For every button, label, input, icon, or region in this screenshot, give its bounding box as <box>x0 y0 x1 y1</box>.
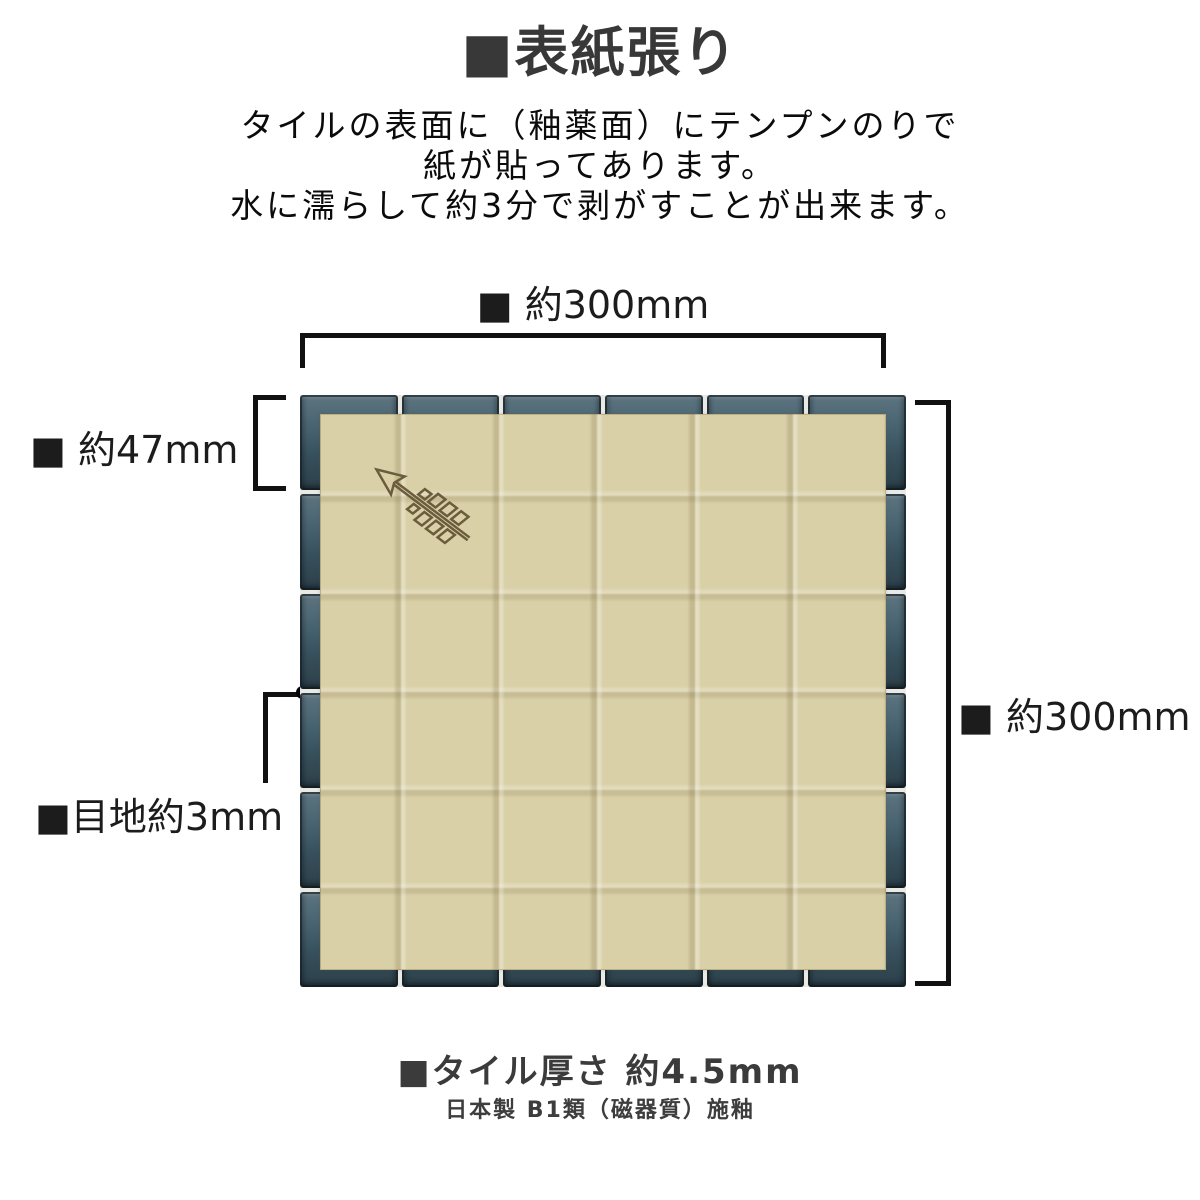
height-dimension-bracket <box>915 400 951 986</box>
dimension-label-joint: ■目地約3mm <box>35 786 283 841</box>
dimension-label-height: ■ 約300mm <box>958 686 1191 741</box>
page-title: ■表紙張り <box>0 8 1200 87</box>
paper-facing <box>320 414 886 970</box>
description-line: 紙が貼ってあります。 <box>0 146 1200 186</box>
description-line: タイルの表面に（釉薬面）にテンプンのりで <box>0 106 1200 146</box>
arrow-logo-icon <box>357 449 491 563</box>
joint-pointer-line <box>263 692 304 783</box>
product-info-page: ■表紙張り タイルの表面に（釉薬面）にテンプンのりで 紙が貼ってあります。 水に… <box>0 0 1200 1200</box>
tile-size-dimension-bracket <box>253 395 286 491</box>
width-dimension-bracket <box>300 333 886 368</box>
dimension-label-width: ■ 約300mm <box>295 274 891 329</box>
origin-spec-label: 日本製 B1類（磁器質）施釉 <box>0 1092 1200 1124</box>
description-line: 水に濡らして約3分で剥がすことが出来ます。 <box>0 186 1200 226</box>
description-text: タイルの表面に（釉薬面）にテンプンのりで 紙が貼ってあります。 水に濡らして約3… <box>0 106 1200 226</box>
dimension-label-tile-size: ■ 約47mm <box>30 419 238 474</box>
tile-thickness-label: ■タイル厚さ 約4.5mm <box>0 1044 1200 1093</box>
